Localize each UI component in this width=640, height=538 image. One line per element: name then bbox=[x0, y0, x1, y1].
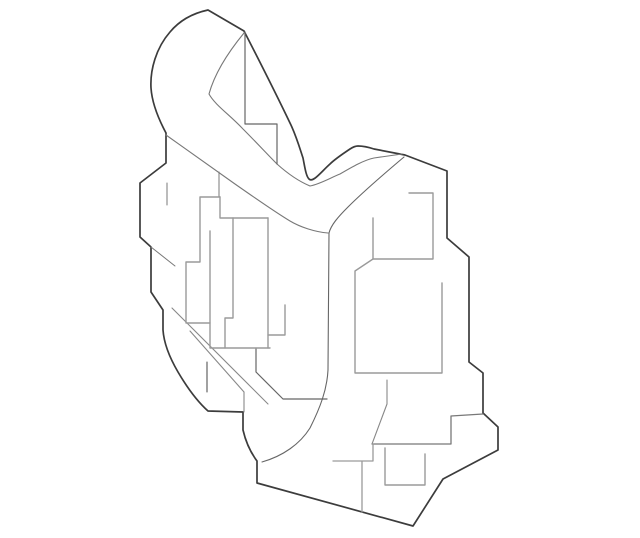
line-center-step-edge bbox=[268, 305, 285, 335]
line-bottom-left-step bbox=[333, 444, 373, 512]
diagram-stage bbox=[0, 0, 640, 538]
line-upper-right-recess bbox=[373, 193, 433, 259]
line-band-inner-edge bbox=[209, 33, 402, 186]
line-outer-boundary bbox=[140, 10, 498, 526]
line-long-diagonal-b bbox=[190, 331, 244, 392]
line-bottom-small-recess bbox=[385, 448, 425, 485]
line-upper-step-edge bbox=[245, 32, 277, 164]
line-mid-right-recess bbox=[355, 259, 442, 373]
line-left-recess-outline bbox=[186, 197, 220, 323]
line-notch-diagonal-stub bbox=[372, 380, 387, 444]
line-left-recess-mid-vertical bbox=[225, 218, 233, 348]
line-left-recess-step bbox=[220, 197, 268, 218]
line-inner-hook-edge bbox=[256, 348, 327, 399]
parts-diagram-canvas bbox=[0, 0, 640, 538]
line-right-notch-edge bbox=[372, 414, 483, 444]
line-hidden-diag-left bbox=[151, 247, 175, 266]
line-left-recess-inner-vertical bbox=[210, 231, 270, 348]
